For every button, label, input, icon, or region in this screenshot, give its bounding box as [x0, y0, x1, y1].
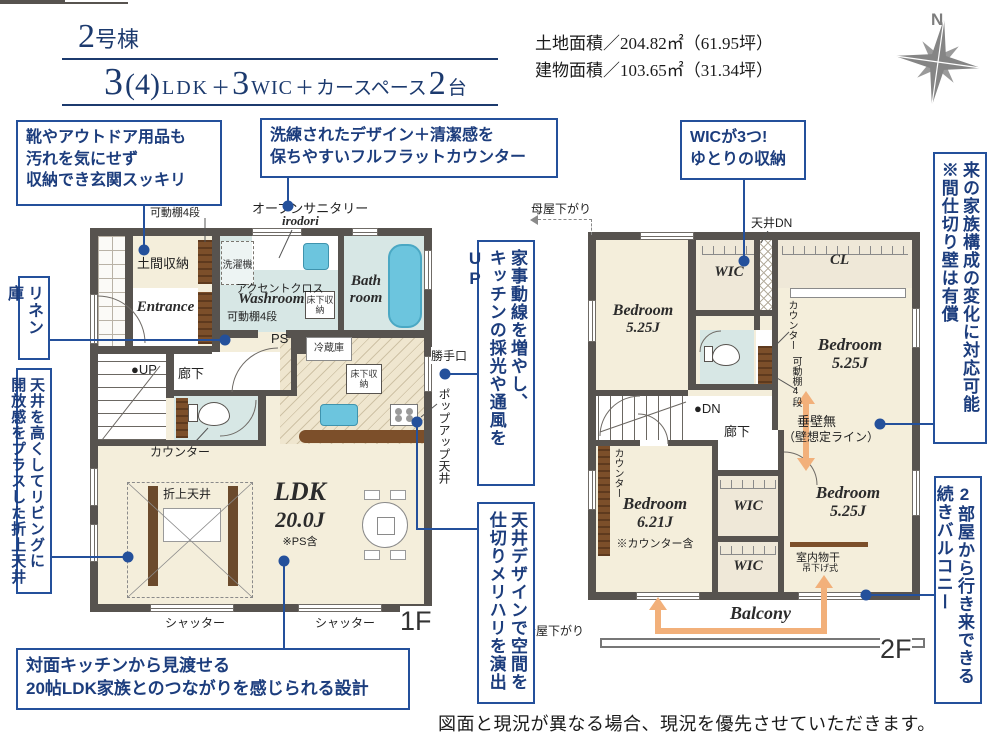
connector-dot [279, 556, 290, 567]
entrance-porch [98, 236, 125, 352]
wall [125, 236, 133, 352]
wall [258, 396, 266, 446]
label-line: 5.25J [626, 320, 660, 337]
wall [772, 240, 778, 430]
layout-ldk: LDK [162, 77, 209, 100]
post [228, 486, 238, 586]
connector-line [866, 594, 934, 596]
label-line: Bedroom [818, 335, 882, 355]
callout-line: 仕切りメリハリを演出 [486, 511, 507, 695]
callout-line: 保ちやすいフルフラットカウンター [270, 147, 548, 169]
wall [588, 232, 920, 240]
connector-dot [220, 335, 231, 346]
label-entrance: Entrance [133, 297, 198, 317]
label-doma: 土間収納 [137, 253, 189, 272]
wall [344, 330, 424, 338]
closet-ticks [720, 480, 776, 489]
connector-line [283, 561, 285, 648]
building-area: 建物面積／103.65㎡（31.34坪） [535, 57, 773, 84]
label-line: Bath [351, 273, 381, 290]
window [640, 232, 694, 240]
callout-line: キッチンの採光や通風をUP [464, 249, 507, 477]
connector-dot [875, 419, 886, 430]
layout-n3: 2 [429, 65, 446, 103]
label-shutter: シャッター [315, 614, 375, 631]
eaves-dash-line [591, 219, 592, 235]
arrow-head-up [649, 597, 667, 610]
wall [718, 536, 778, 542]
window [588, 470, 596, 510]
label-shelf4: 可動棚4段 [227, 308, 277, 324]
layout-n1: 3 [104, 60, 123, 104]
building-number: 2 [78, 18, 95, 55]
chair-icon [364, 550, 380, 560]
label-line: ※カウンター含 [617, 535, 694, 551]
toilet-tank [704, 346, 713, 362]
label-wic-2: WIC [718, 556, 778, 576]
window [588, 300, 596, 342]
label-ldk: LDK 20.0J ※PS含 [256, 478, 344, 548]
balcony-route-arrow [655, 628, 827, 634]
label-bedroom-right: Bedroom 5.25J [794, 326, 906, 382]
callout-line: 来の家族構成の変化に対応可能 [959, 161, 980, 435]
wall [262, 390, 297, 396]
label-line: 5.25J [830, 503, 866, 521]
callout-folded-ceiling: 天井を高くしてリビングに 開放感をプラスした折上天井 [16, 368, 52, 594]
washing-machine: 洗濯機 [221, 241, 254, 285]
window [90, 468, 98, 506]
balcony-railing [600, 638, 925, 640]
stairs-2f [598, 396, 688, 440]
label-cl: CL [830, 252, 849, 269]
wall [596, 440, 640, 446]
label-ps: PS [271, 331, 288, 346]
window [912, 470, 920, 516]
callout-partition-option: 来の家族構成の変化に対応可能 ※間仕切り壁は有償 [933, 152, 987, 444]
callout-line: 対面キッチンから見渡せる [26, 655, 400, 678]
window [252, 228, 302, 236]
label-irodori: irodori [282, 213, 319, 229]
bathtub-icon [388, 244, 422, 328]
building-suffix: 号棟 [95, 27, 139, 52]
layout-plus1: ＋ [211, 73, 230, 100]
fridge: 冷蔵庫 [306, 337, 352, 361]
wall [696, 310, 772, 316]
arrow-head-up [815, 575, 833, 588]
label-line: 6.21J [637, 514, 673, 532]
balcony-railing-post [600, 638, 602, 648]
label-counter-2f-left: カウンター [612, 448, 622, 498]
wall [688, 240, 696, 390]
floorplan-page: 2号棟 3 (4) LDK ＋ 3 WIC ＋ カースペース 2 台 土地面積／… [0, 0, 1000, 750]
wall [98, 346, 212, 354]
connector-line [743, 179, 745, 260]
land-area: 土地面積／204.82㎡（61.95坪） [535, 30, 773, 57]
connector-line [416, 528, 477, 530]
label-popup-ceiling: ポップアップ天井 [438, 388, 450, 484]
closet-ticks [702, 246, 756, 255]
label-hanging-type: 吊下げ式 [802, 561, 838, 574]
connector-dot [412, 417, 423, 428]
kitchen-counter-front [299, 430, 424, 443]
connector-dot [139, 245, 150, 256]
window [798, 592, 868, 600]
layout-n2: 3 [232, 65, 249, 103]
underfloor-storage-kitchen: 床下収納 [346, 364, 382, 394]
label-eaves-top: 母屋下がり [531, 200, 591, 217]
callout-line: 靴やアウトドア用品も [26, 127, 212, 149]
connector-dot [440, 369, 451, 380]
closet-ticks [720, 546, 776, 555]
toilet-icon [198, 402, 230, 426]
callout-line: 天井デザインで空間を [507, 511, 528, 695]
post [148, 486, 158, 586]
label-line: 5.25J [832, 355, 868, 373]
label-counter-2f-right: カウンター [786, 300, 796, 350]
window [636, 592, 700, 600]
label-shelf4-2f: 可動棚4段 [790, 356, 800, 407]
callout-line: 洗練されたデザイン＋清潔感を [270, 125, 548, 147]
sink-icon [303, 243, 329, 270]
kitchen-sink-icon [320, 404, 358, 426]
label-floor-1f: 1F [400, 606, 432, 637]
wall [696, 384, 772, 390]
connector-line [48, 339, 225, 341]
label-bedroom-tl: Bedroom 5.25J [598, 292, 688, 346]
connector-dot [123, 552, 134, 563]
chair-icon [364, 490, 380, 500]
wall [338, 236, 344, 332]
chair-icon [390, 490, 406, 500]
label-line: Bedroom [613, 302, 673, 320]
callout-wic3: WICが3つ! ゆとりの収納 [680, 120, 806, 180]
label-stairs-up: ●UP [131, 362, 157, 377]
wall [174, 390, 266, 396]
label-corridor-2f: 廊下 [724, 421, 750, 440]
callout-ldk-view: 対面キッチンから見渡せる 20帖LDK家族とのつながりを感じられる設計 [16, 648, 410, 710]
callout-line: 開放感をプラスした折上天井 [8, 377, 27, 585]
label-line: WIC [714, 264, 743, 281]
window [352, 228, 378, 236]
wall [588, 232, 596, 600]
label-line: ※PS含 [283, 533, 318, 549]
callout-ceiling-design: 天井デザインで空間を 仕切りメリハリを演出 [477, 502, 535, 704]
balcony-railing-post [923, 638, 925, 648]
wall [166, 354, 174, 398]
shelf-linen [198, 292, 213, 344]
washer-label: 洗濯機 [223, 256, 253, 271]
layout-dai: 台 [448, 73, 467, 100]
label-corridor-1f: 廊下 [178, 363, 204, 382]
label-counter-1f: カウンター [150, 443, 210, 460]
dining-table-icon [362, 502, 408, 548]
area-info: 土地面積／204.82㎡（61.95坪） 建物面積／103.65㎡（31.34坪… [535, 30, 773, 84]
layout-car: カースペース [316, 73, 427, 100]
layout-wic: WIC [251, 77, 293, 100]
callout-line: 天井を高くしてリビングに [26, 377, 45, 585]
callout-line: 20帖LDK家族とのつながりを感じられる設計 [26, 678, 400, 701]
layout-paren: (4) [125, 68, 160, 102]
callout-line: ※間仕切り壁は有償 [938, 161, 959, 435]
eaves-dash-line [538, 219, 592, 220]
closet-rod [790, 288, 906, 298]
label-shutter: シャッター [165, 614, 225, 631]
label-balcony: Balcony [730, 603, 791, 624]
callout-line: 家事動線を増やし、 [507, 249, 528, 477]
label-stairs-dn: ●DN [694, 401, 721, 416]
label-line: room [350, 290, 383, 307]
callout-line: 収納でき玄関スッキリ [26, 170, 212, 192]
label-line: Bedroom [816, 483, 880, 503]
callout-line: 汚れを気にせず [26, 149, 212, 171]
toilet-tank [188, 404, 198, 422]
wall [778, 430, 784, 592]
callout-entrance-storage: 靴やアウトドア用品も 汚れを気にせず 収納でき玄関スッキリ [16, 120, 222, 206]
label-washroom: Washroom [238, 291, 304, 308]
window-shutter [298, 604, 382, 612]
layout-summary: 3 (4) LDK ＋ 3 WIC ＋ カースペース 2 台 [104, 60, 467, 104]
balcony-railing [600, 646, 925, 648]
wall [718, 470, 778, 476]
chair-icon [390, 550, 406, 560]
label-folded-ceiling: 折上天井 [163, 485, 211, 502]
header-rule-bottom [62, 104, 498, 106]
window-shutter [150, 604, 234, 612]
callout-housework-line: 家事動線を増やし、 キッチンの採光や通風をUP [477, 240, 535, 486]
arrow-head-down [797, 458, 815, 471]
label: 床下収納 [306, 295, 334, 316]
wall [668, 440, 718, 446]
label-line: WIC [733, 558, 762, 575]
connector-dot [861, 590, 872, 601]
label-assumed-wall: （壁想定ライン） [783, 428, 879, 445]
label-bathroom: Bath room [346, 272, 386, 308]
window [912, 308, 920, 348]
wall [754, 240, 760, 330]
shelf-toilet-counter [176, 398, 188, 438]
connector-line [416, 422, 418, 530]
label-wic-top: WIC [700, 262, 758, 282]
connector-line [880, 423, 935, 425]
label: 床下収納 [347, 369, 381, 390]
label-line: Bedroom [623, 494, 687, 514]
connector-line [50, 556, 128, 558]
wall [912, 232, 920, 600]
label-floor-2f: 2F [880, 634, 912, 665]
callout-line: 続きバルコニー [933, 485, 954, 695]
shelf-lshape [198, 240, 213, 284]
balcony-route-arrow [821, 586, 827, 634]
callout-flat-counter: 洗練されたデザイン＋清潔感を 保ちやすいフルフラットカウンター [260, 118, 558, 178]
callout-line: リネン庫 [3, 285, 43, 351]
connector-dot [739, 256, 750, 267]
entrance-door [90, 294, 98, 344]
callout-adjoining-balcony: 2部屋から行き来できる 続きバルコニー [934, 476, 982, 704]
callout-linen: リネン庫 [18, 276, 50, 360]
label-bedroom-br: Bedroom 5.25J [788, 474, 908, 530]
partition-assumed-line [0, 2, 128, 4]
label-kitchen-door: 勝手口 [431, 347, 467, 364]
connector-dot [283, 201, 294, 212]
compass-north-label: N [931, 10, 943, 30]
label-line: Entrance [137, 299, 195, 316]
callout-line: WICが3つ! [690, 127, 796, 149]
connector-line [143, 205, 145, 250]
floorplan-2f: 母屋下がり 天井DN Bedroom 5.25J WIC CL Bedroom … [0, 2, 1000, 4]
label-line: WIC [733, 498, 762, 515]
laundry-pole [790, 542, 868, 547]
label-line: LDK [274, 477, 326, 507]
callout-line: 2部屋から行き来できる [954, 485, 975, 695]
disclaimer: 図面と現況が異なる場合、現況を優先させていただきます。 [438, 710, 936, 736]
label-ceiling-dn: 天井DN [751, 214, 792, 231]
page-title: 2号棟 [78, 18, 139, 56]
label-line: 可動棚4段 [146, 207, 204, 220]
toilet-icon [712, 344, 740, 366]
window [424, 250, 432, 290]
layout-plus2: ＋ [295, 73, 314, 100]
label-wic-1: WIC [718, 496, 778, 516]
label-line: 20.0J [275, 507, 325, 533]
callout-line: ゆとりの収納 [690, 149, 796, 171]
wall [596, 390, 688, 396]
fridge-label: 冷蔵庫 [314, 343, 344, 355]
sofa-icon [163, 508, 221, 542]
